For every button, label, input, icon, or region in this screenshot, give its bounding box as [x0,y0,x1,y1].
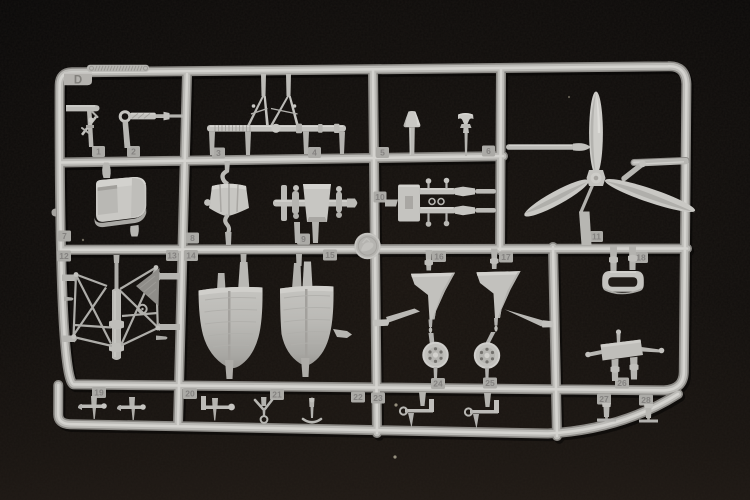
svg-text:5: 5 [380,148,385,158]
svg-text:16: 16 [434,252,444,262]
svg-text:7: 7 [62,231,67,241]
svg-text:28: 28 [641,395,651,405]
svg-text:2: 2 [131,147,136,157]
svg-text:17: 17 [501,252,511,262]
svg-text:21: 21 [272,390,282,400]
svg-text:27: 27 [599,394,609,404]
svg-text:24: 24 [433,379,443,389]
svg-text:9: 9 [301,234,306,244]
svg-text:18: 18 [636,253,646,263]
svg-text:20: 20 [185,389,195,399]
svg-text:15: 15 [325,250,335,260]
svg-text:1: 1 [96,147,101,157]
svg-text:22: 22 [353,392,363,402]
svg-text:12: 12 [59,251,69,261]
svg-text:10: 10 [375,192,385,202]
svg-text:4: 4 [312,148,317,158]
svg-text:6: 6 [486,146,491,156]
svg-text:3: 3 [216,148,221,158]
svg-text:14: 14 [186,251,196,261]
svg-text:23: 23 [373,393,383,403]
svg-text:25: 25 [485,378,495,388]
svg-text:13: 13 [167,251,177,261]
svg-text:8: 8 [190,233,195,243]
svg-text:11: 11 [592,232,601,242]
svg-text:D: D [74,75,82,87]
svg-text:26: 26 [617,378,627,388]
